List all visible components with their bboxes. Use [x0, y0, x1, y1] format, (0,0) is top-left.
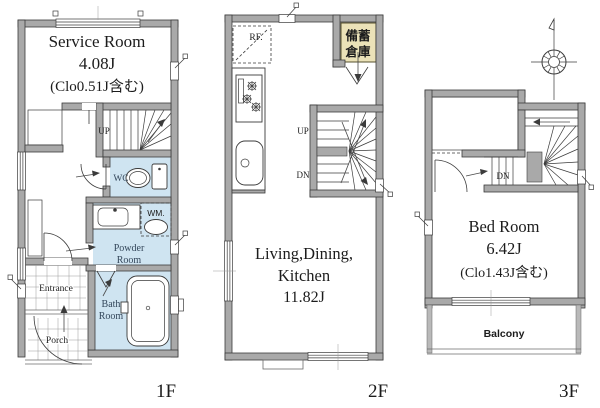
balcony-label: Balcony: [484, 328, 525, 340]
service-room-size: 4.08J: [79, 54, 116, 73]
sink-icon: [93, 205, 140, 229]
service-room-name: Service Room: [49, 32, 146, 51]
stairs-dn-label-3f: DN: [497, 171, 510, 181]
stairs-dn-label-2f: DN: [297, 170, 310, 180]
bed-room-note: (Clo1.43J含む): [460, 265, 548, 281]
1f-left-window-service: [18, 152, 26, 190]
outdoor-step: [263, 360, 303, 369]
storage-line2: 倉庫: [344, 44, 371, 59]
floorplan-3f: DN Bed Room 6.42J (Clo1.43J含む) Balcony 3…: [415, 19, 594, 402]
floorplan-2f: 備蓄 倉庫 RF. UP DN Living,Dining, Kitchen 1…: [213, 3, 393, 402]
1f-top-window: [53, 6, 143, 28]
ldk-line2: Kitchen: [278, 266, 330, 285]
ldk-size: 11.82J: [283, 289, 325, 306]
bed-room-name: Bed Room: [468, 217, 539, 236]
bath-room-line1: Bath: [102, 299, 121, 310]
powder-room-line2: Room: [117, 255, 142, 266]
entrance-label: Entrance: [39, 284, 73, 294]
floor-label-2f: 2F: [368, 381, 388, 402]
2f-left-window: [213, 241, 236, 301]
bed-room-size: 6.42J: [486, 239, 522, 258]
wc-label: WC: [113, 174, 128, 184]
bath-room-line2: Room: [99, 311, 124, 322]
floor-plan-canvas: Service Room 4.08J (Clo0.51J含む) UP WC WM…: [0, 0, 600, 408]
porch-label: Porch: [46, 336, 68, 346]
stairs-up-label-1f: UP: [98, 126, 110, 136]
ldk-line1: Living,Dining,: [255, 244, 353, 263]
floor-label-1f: 1F: [156, 381, 176, 402]
wm-label: WM.: [147, 208, 164, 218]
kitchen-sink-icon: [236, 141, 263, 185]
service-room-note: (Clo0.51J含む): [50, 78, 144, 95]
floorplan-1f: Service Room 4.08J (Clo0.51J含む) UP WC WM…: [8, 6, 188, 402]
compass-icon: [531, 19, 577, 100]
stairs-up-label-2f: UP: [297, 126, 309, 136]
1f-right-window-bath: [171, 296, 184, 314]
powder-room-line1: Powder: [114, 243, 145, 254]
bathtub-icon: [121, 276, 169, 346]
north-flag: [549, 19, 554, 30]
stove-icon: [236, 75, 262, 122]
floor-label-3f: 3F: [559, 381, 579, 402]
refrigerator-label: RF.: [249, 33, 262, 43]
1f-left-window-entrance: [18, 248, 26, 280]
storage-line1: 備蓄: [345, 28, 371, 43]
